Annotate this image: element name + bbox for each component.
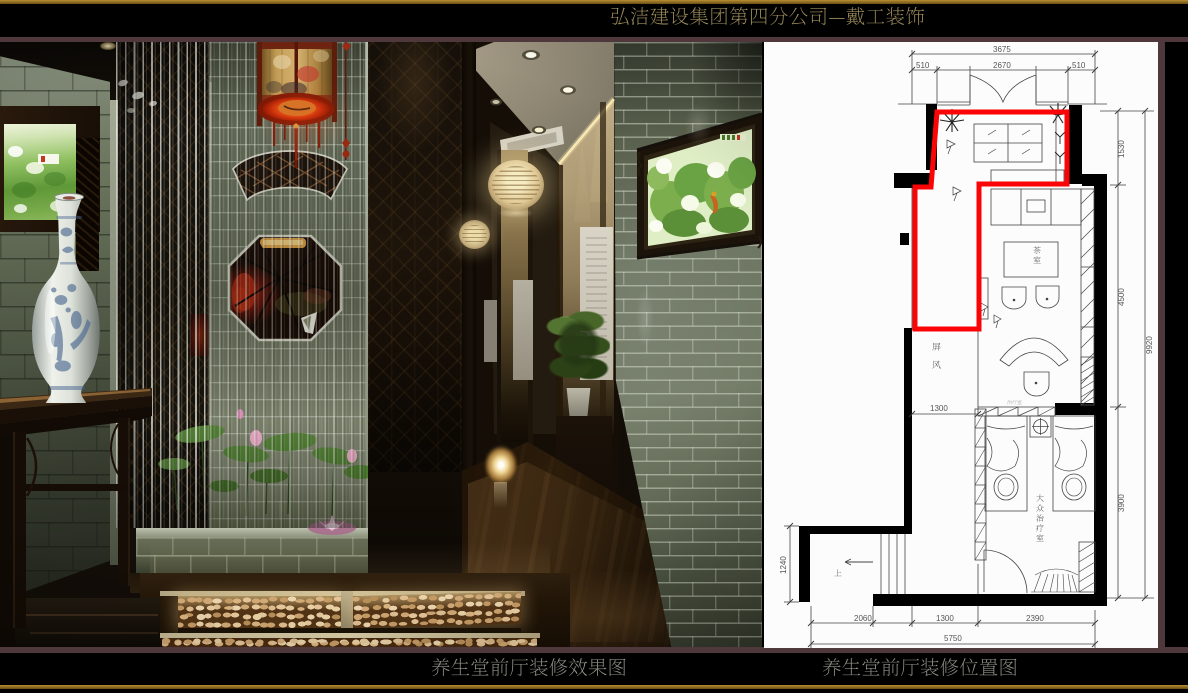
svg-text:2670: 2670 [993,61,1011,70]
svg-text:5750: 5750 [944,634,962,643]
svg-text:2060: 2060 [854,614,872,623]
svg-text:1300: 1300 [930,404,948,413]
svg-text:510: 510 [1072,61,1086,70]
svg-text:4500: 4500 [1117,288,1126,306]
svg-text:9920: 9920 [1145,336,1154,354]
svg-text:1240: 1240 [779,556,788,574]
svg-text:1530: 1530 [1117,140,1126,158]
svg-text:510: 510 [916,61,930,70]
svg-text:2390: 2390 [1026,614,1044,623]
svg-text:3900: 3900 [1117,494,1126,512]
svg-text:1300: 1300 [936,614,954,623]
svg-text:3675: 3675 [993,45,1011,54]
